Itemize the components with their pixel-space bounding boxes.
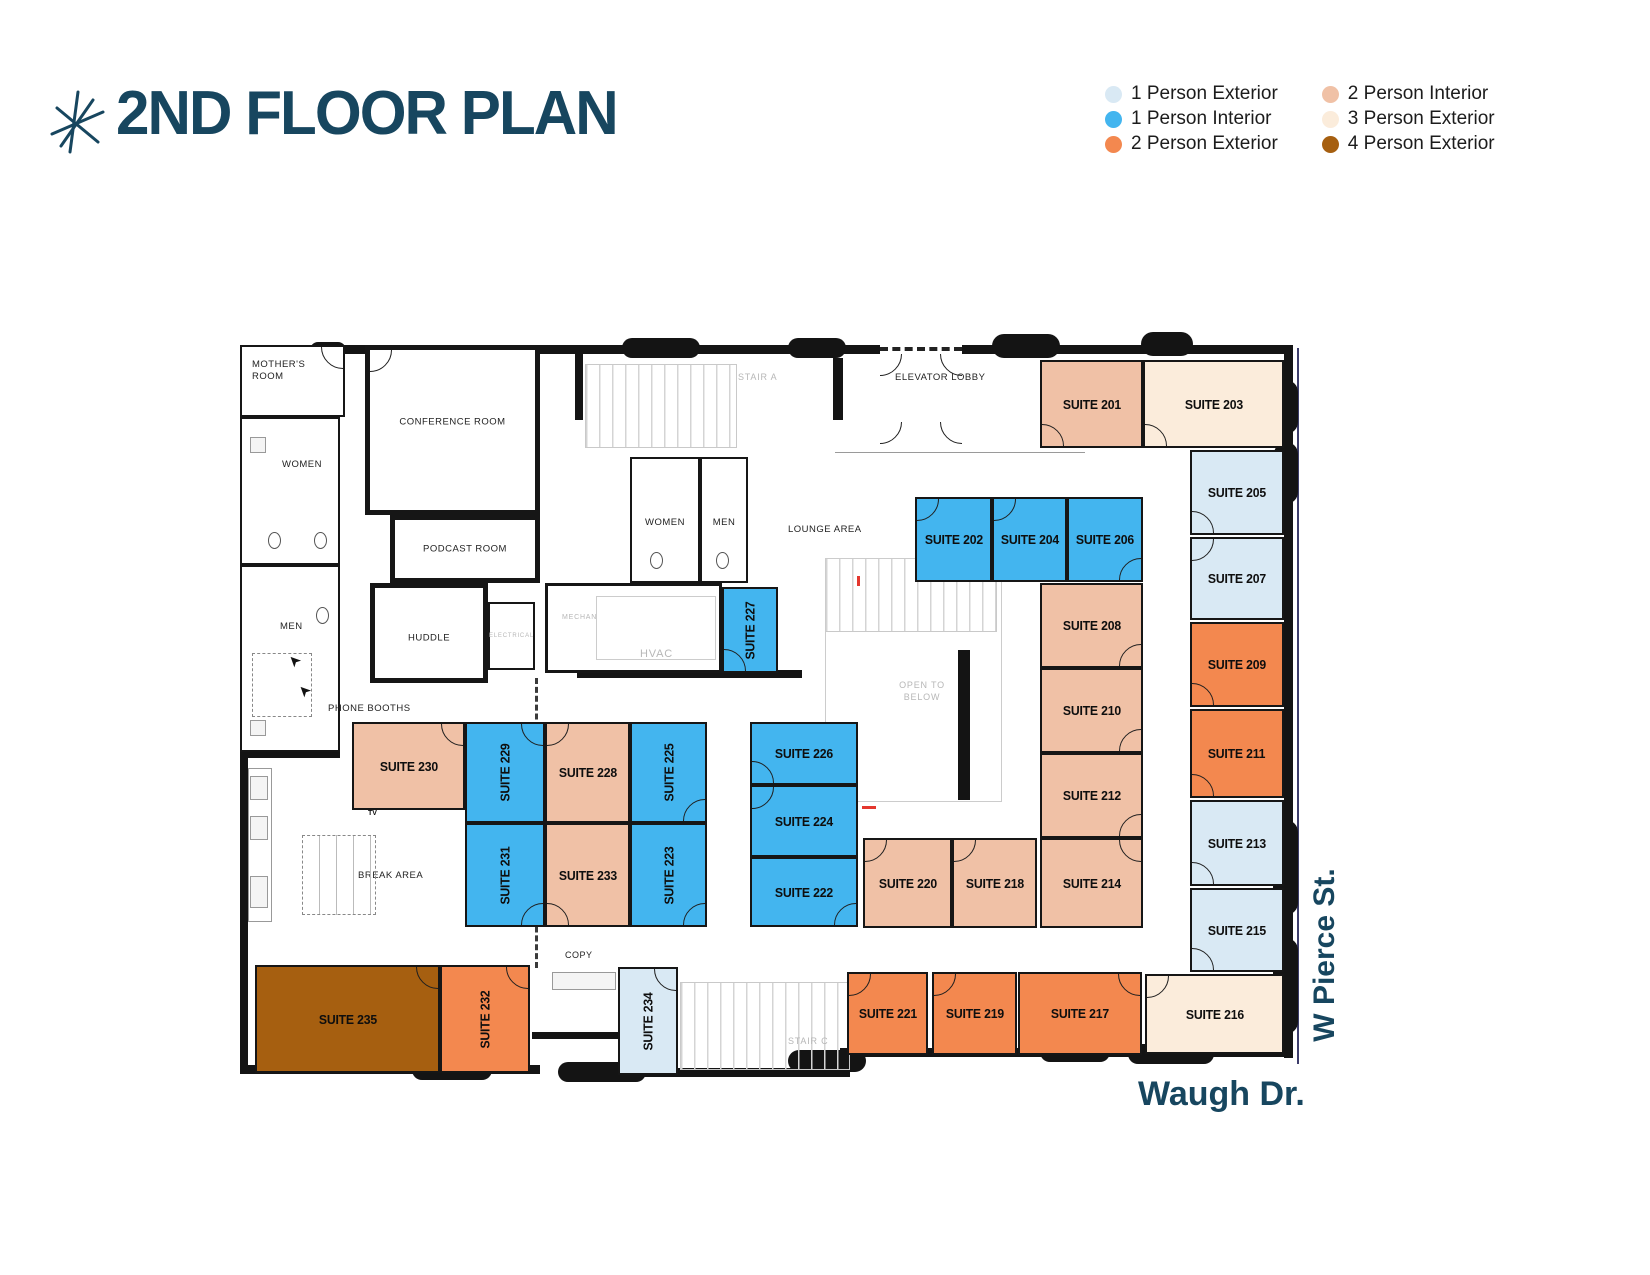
room-women-left: WOMEN: [240, 417, 340, 565]
suite-label: SUITE 222: [775, 885, 833, 900]
suite-label: SUITE 209: [1208, 657, 1266, 672]
legend-item: 4 Person Exterior: [1322, 134, 1495, 154]
suite-234: SUITE 234: [618, 967, 678, 1075]
suite-label: SUITE 230: [379, 759, 437, 774]
suite-218: SUITE 218: [952, 838, 1037, 928]
suite-label: SUITE 214: [1062, 876, 1120, 891]
room-label: WOMEN: [645, 517, 685, 528]
suite-204: SUITE 204: [992, 497, 1067, 582]
suite-label: SUITE 216: [1185, 1007, 1243, 1022]
street-label-w-pierce: W Pierce St.: [1307, 867, 1343, 1043]
suite-label: SUITE 207: [1208, 571, 1266, 586]
suite-209: SUITE 209: [1190, 622, 1284, 707]
room-women-mid: WOMEN: [630, 457, 700, 583]
room-label: MEN: [713, 517, 736, 528]
elevator-lobby-label: ELEVATOR LOBBY: [895, 372, 985, 383]
suite-label: SUITE 202: [924, 532, 982, 547]
legend-label: 2 Person Interior: [1348, 83, 1488, 105]
lounge-label: LOUNGE AREA: [788, 524, 862, 535]
suite-227: SUITE 227: [722, 587, 778, 673]
break-island: [302, 835, 376, 915]
floor-plan: MOTHER'S ROOM WOMEN MEN CONFERENCE ROOM …: [240, 320, 1302, 1082]
suite-label: SUITE 215: [1208, 923, 1266, 938]
toilet-icon: [314, 532, 327, 549]
stair-c-treads: [680, 982, 850, 1070]
stair-a-treads: [585, 364, 737, 448]
legend-column-1: 1 Person Exterior 1 Person Interior 2 Pe…: [1105, 84, 1278, 154]
suite-214: SUITE 214: [1040, 838, 1143, 928]
wall-column: [788, 338, 846, 358]
suite-label: SUITE 212: [1062, 788, 1120, 803]
suite-231: SUITE 231: [465, 823, 545, 927]
suite-label: SUITE 203: [1184, 397, 1242, 412]
legend: 1 Person Exterior 1 Person Interior 2 Pe…: [1105, 84, 1495, 154]
suite-label: SUITE 228: [558, 765, 616, 780]
suite-label: SUITE 206: [1076, 532, 1134, 547]
toilet-icon: [316, 607, 329, 624]
door-arc: [895, 477, 939, 521]
suite-223: SUITE 223: [630, 823, 707, 927]
page: { "title": "2ND FLOOR PLAN", "colors": {…: [0, 0, 1650, 1275]
suite-230: SUITE 230: [352, 722, 465, 810]
room-mothers: MOTHER'S ROOM: [240, 345, 345, 417]
suite-212: SUITE 212: [1040, 753, 1143, 838]
phone-booths-label: PHONE BOOTHS: [328, 703, 411, 714]
legend-label: 3 Person Exterior: [1348, 108, 1495, 130]
door-arc: [506, 945, 550, 989]
suite-label: SUITE 233: [558, 868, 616, 883]
suite-label: SUITE 218: [965, 876, 1023, 891]
star-icon: [48, 86, 106, 156]
legend-swatch: [1105, 111, 1122, 128]
suite-label: SUITE 225: [661, 743, 676, 801]
exit-mark: [862, 806, 876, 809]
door-arc: [940, 400, 984, 444]
legend-item: 3 Person Exterior: [1322, 109, 1495, 129]
legend-column-2: 2 Person Interior 3 Person Exterior 4 Pe…: [1322, 84, 1495, 154]
room-label: CONFERENCE ROOM: [399, 417, 505, 428]
suite-211: SUITE 211: [1190, 709, 1284, 798]
suite-label: SUITE 235: [318, 1012, 376, 1027]
suite-210: SUITE 210: [1040, 668, 1143, 753]
suite-label: SUITE 201: [1062, 397, 1120, 412]
room-mechanical: MECHANICAL HVAC: [545, 583, 722, 673]
suite-label: SUITE 205: [1208, 485, 1266, 500]
wall-column: [622, 338, 700, 358]
suite-215: SUITE 215: [1190, 888, 1284, 972]
suite-220: SUITE 220: [863, 838, 952, 928]
toilet-icon: [716, 552, 729, 569]
wall: [532, 1032, 628, 1039]
suite-label: SUITE 224: [775, 814, 833, 829]
stair-a-label: STAIR A: [738, 372, 777, 382]
suite-label: SUITE 221: [858, 1006, 916, 1021]
suite-224: SUITE 224: [750, 785, 858, 857]
legend-label: 4 Person Exterior: [1348, 133, 1495, 155]
legend-label: 1 Person Interior: [1131, 108, 1271, 130]
elevator-door-threshold: [880, 347, 962, 351]
suite-222: SUITE 222: [750, 857, 858, 927]
lobby-line: [835, 452, 1085, 453]
tv-label: TV: [368, 810, 377, 817]
door-arc: [1020, 424, 1064, 468]
wall: [833, 358, 843, 420]
suite-225: SUITE 225: [630, 722, 707, 823]
appliance: [250, 776, 268, 800]
legend-item: 2 Person Interior: [1322, 84, 1495, 104]
suite-label: SUITE 211: [1208, 746, 1265, 761]
stair-wall: [958, 650, 970, 800]
suite-226: SUITE 226: [750, 722, 858, 785]
room-podcast: PODCAST ROOM: [390, 515, 540, 583]
suite-232: SUITE 232: [440, 965, 530, 1073]
door-arc: [858, 400, 902, 444]
legend-swatch: [1322, 136, 1339, 153]
room-label: ELECTRICAL: [489, 633, 534, 639]
suite-229: SUITE 229: [465, 722, 545, 823]
suite-label: SUITE 223: [661, 846, 676, 904]
suite-208: SUITE 208: [1040, 583, 1143, 668]
legend-item: 2 Person Exterior: [1105, 134, 1278, 154]
room-conference: CONFERENCE ROOM: [365, 345, 540, 515]
suite-233: SUITE 233: [545, 823, 630, 927]
copy-label: COPY: [565, 950, 593, 960]
suite-228: SUITE 228: [545, 722, 630, 823]
suite-label: SUITE 208: [1062, 618, 1120, 633]
suite-201: SUITE 201: [1040, 360, 1143, 448]
legend-label: 2 Person Exterior: [1131, 133, 1278, 155]
legend-label: 1 Person Exterior: [1131, 83, 1278, 105]
exit-mark: [857, 576, 860, 586]
appliance: [250, 876, 268, 908]
suite-205: SUITE 205: [1190, 450, 1284, 535]
suite-217: SUITE 217: [1018, 972, 1142, 1055]
suite-label: SUITE 217: [1051, 1006, 1109, 1021]
legend-item: 1 Person Exterior: [1105, 84, 1278, 104]
sink-icon: [250, 437, 266, 453]
sink-icon: [250, 720, 266, 736]
open-to-below-label: OPEN TO BELOW: [888, 680, 956, 703]
room-label: HUDDLE: [408, 633, 450, 644]
suite-221: SUITE 221: [847, 972, 928, 1055]
suite-label: SUITE 232: [477, 990, 492, 1048]
suite-label: SUITE 204: [1000, 532, 1058, 547]
suite-206: SUITE 206: [1067, 497, 1143, 582]
toilet-icon: [650, 552, 663, 569]
room-label: MOTHER'S ROOM: [252, 359, 322, 383]
legend-swatch: [1322, 86, 1339, 103]
room-electrical: ELECTRICAL: [488, 602, 535, 670]
suite-203: SUITE 203: [1143, 360, 1284, 448]
suite-label: SUITE 229: [497, 743, 512, 801]
appliance: [250, 816, 268, 840]
suite-label: SUITE 219: [945, 1006, 1003, 1021]
suite-label: SUITE 220: [878, 876, 936, 891]
suite-label: SUITE 227: [743, 601, 758, 659]
room-label: MEN: [280, 621, 303, 632]
page-title: 2ND FLOOR PLAN: [116, 78, 617, 149]
street-label-waugh: Waugh Dr.: [1138, 1075, 1305, 1114]
header: 2ND FLOOR PLAN: [48, 78, 632, 156]
copier: [552, 972, 616, 990]
room-label: PODCAST ROOM: [423, 544, 507, 555]
room-label: WOMEN: [282, 459, 322, 470]
wall-column: [1141, 332, 1193, 356]
suite-235: SUITE 235: [255, 965, 440, 1073]
legend-swatch: [1105, 86, 1122, 103]
room-huddle: HUDDLE: [370, 583, 488, 683]
door-arc: [858, 332, 902, 376]
suite-label: SUITE 234: [641, 992, 656, 1050]
room-men-mid: MEN: [700, 457, 748, 583]
room-label: HVAC: [640, 648, 673, 660]
toilet-icon: [268, 532, 281, 549]
wall: [575, 354, 583, 420]
door-arc: [683, 903, 727, 947]
door-arc: [940, 332, 984, 376]
suite-label: SUITE 210: [1062, 703, 1120, 718]
suite-label: SUITE 226: [775, 746, 833, 761]
suite-213: SUITE 213: [1190, 800, 1284, 886]
wall-column: [992, 334, 1060, 358]
legend-item: 1 Person Interior: [1105, 109, 1278, 129]
suite-207: SUITE 207: [1190, 537, 1284, 620]
stair-c-label: STAIR C: [788, 1036, 828, 1046]
suite-label: SUITE 213: [1208, 836, 1266, 851]
suite-219: SUITE 219: [932, 972, 1017, 1055]
suite-label: SUITE 231: [497, 846, 512, 904]
legend-swatch: [1105, 136, 1122, 153]
legend-swatch: [1322, 111, 1339, 128]
suite-216: SUITE 216: [1145, 974, 1284, 1054]
suite-202: SUITE 202: [915, 497, 992, 582]
